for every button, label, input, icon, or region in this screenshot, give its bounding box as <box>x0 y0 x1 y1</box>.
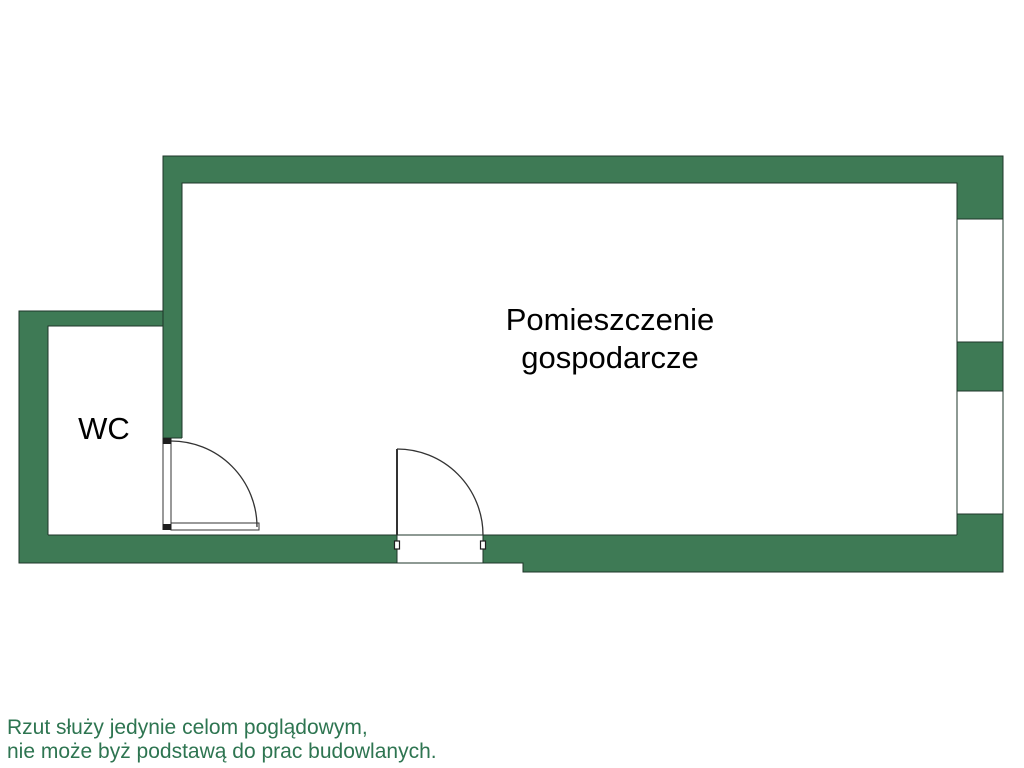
disclaimer-line2: nie może byż podstawą do prac budowlanyc… <box>7 740 437 764</box>
wc-room-label: WC <box>54 410 154 448</box>
wall-top <box>163 156 1003 183</box>
floorplan-canvas: Pomieszczenie gospodarcze WC Rzut służy … <box>0 0 1024 768</box>
floorplan-drawing <box>0 0 1024 768</box>
window-2 <box>957 391 1003 514</box>
entrance-door-jamb-left <box>395 541 400 549</box>
disclaimer-line1: Rzut służy jedynie celom poglądowym, <box>7 716 437 740</box>
entrance-door-jamb-right <box>481 541 486 549</box>
entrance-door-opening <box>397 535 483 563</box>
main-room-label-line2: gospodarcze <box>410 339 810 377</box>
window-1 <box>957 219 1003 342</box>
wall-left-main-room <box>163 183 182 438</box>
entrance-door-swing-arc <box>397 449 483 535</box>
entrance-door <box>395 449 486 563</box>
main-room-label-line1: Pomieszczenie <box>410 301 810 339</box>
main-room-label: Pomieszczenie gospodarcze <box>410 301 810 377</box>
wc-door-frame <box>163 439 171 529</box>
wc-wall-left <box>19 326 48 563</box>
disclaimer-text: Rzut służy jedynie celom poglądowym, nie… <box>7 716 437 764</box>
wc-door <box>163 438 260 530</box>
wc-wall-top <box>19 311 163 326</box>
wc-door-leaf <box>171 523 259 530</box>
wc-door-swing-arc <box>171 441 257 527</box>
wall-bottom-right <box>523 535 1003 572</box>
wc-door-jamb-top <box>163 438 172 444</box>
wc-door-jamb-bottom <box>163 524 172 530</box>
